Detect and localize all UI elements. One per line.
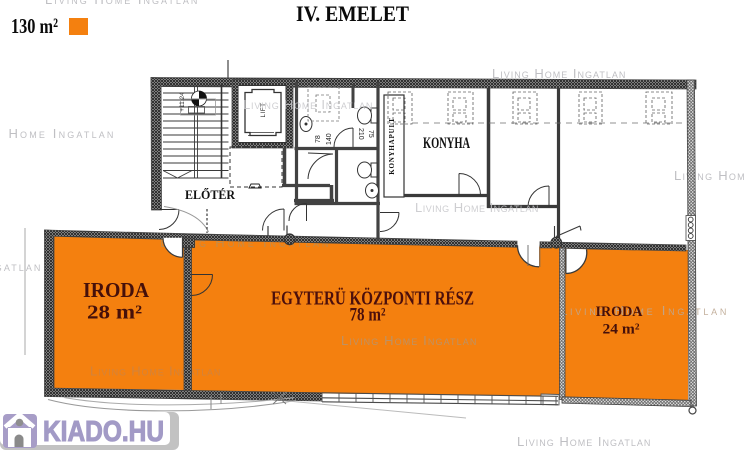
svg-text:Living Home Ingatlan: Living Home Ingatlan [492,66,627,81]
svg-text:Living Home Ingatlan: Living Home Ingatlan [90,364,222,379]
svg-text:KONYHA: KONYHA [423,135,470,152]
svg-text:210: 210 [357,128,364,140]
svg-text:75: 75 [367,130,374,138]
svg-text:140: 140 [326,133,333,145]
svg-text:KONYHAPULT: KONYHAPULT [388,117,396,175]
svg-text:Living Home Ingatlan: Living Home Ingatlan [0,126,115,141]
svg-text:ELŐTÉR: ELŐTÉR [185,187,236,202]
svg-text:28 m²: 28 m² [87,302,142,324]
svg-text:IRODA: IRODA [596,304,643,320]
svg-text:Living Home Ingatlan: Living Home Ingatlan [560,303,728,318]
svg-text:IV. EMELET: IV. EMELET [296,1,409,26]
svg-text:Living Home Ingatlan: Living Home Ingatlan [674,168,746,183]
svg-text:Living Home Ingatlan: Living Home Ingatlan [243,97,374,112]
svg-text:KIADO.HU: KIADO.HU [43,416,164,448]
svg-text:Living Home Ingatlan: Living Home Ingatlan [341,333,478,348]
svg-text:Living Home Ingatlan: Living Home Ingatlan [415,200,540,215]
svg-text:+11.24: +11.24 [179,92,186,112]
svg-text:Living Home Ingatlan: Living Home Ingatlan [0,259,42,274]
svg-text:78 m²: 78 m² [350,305,386,326]
svg-text:24 m²: 24 m² [603,322,641,338]
svg-text:78: 78 [315,135,322,143]
svg-text:Living Home Ingatlan: Living Home Ingatlan [517,434,652,449]
svg-text:IRODA: IRODA [83,278,150,302]
svg-text:130 m²: 130 m² [11,14,58,38]
svg-text:Living Home Ingatlan: Living Home Ingatlan [45,0,199,7]
